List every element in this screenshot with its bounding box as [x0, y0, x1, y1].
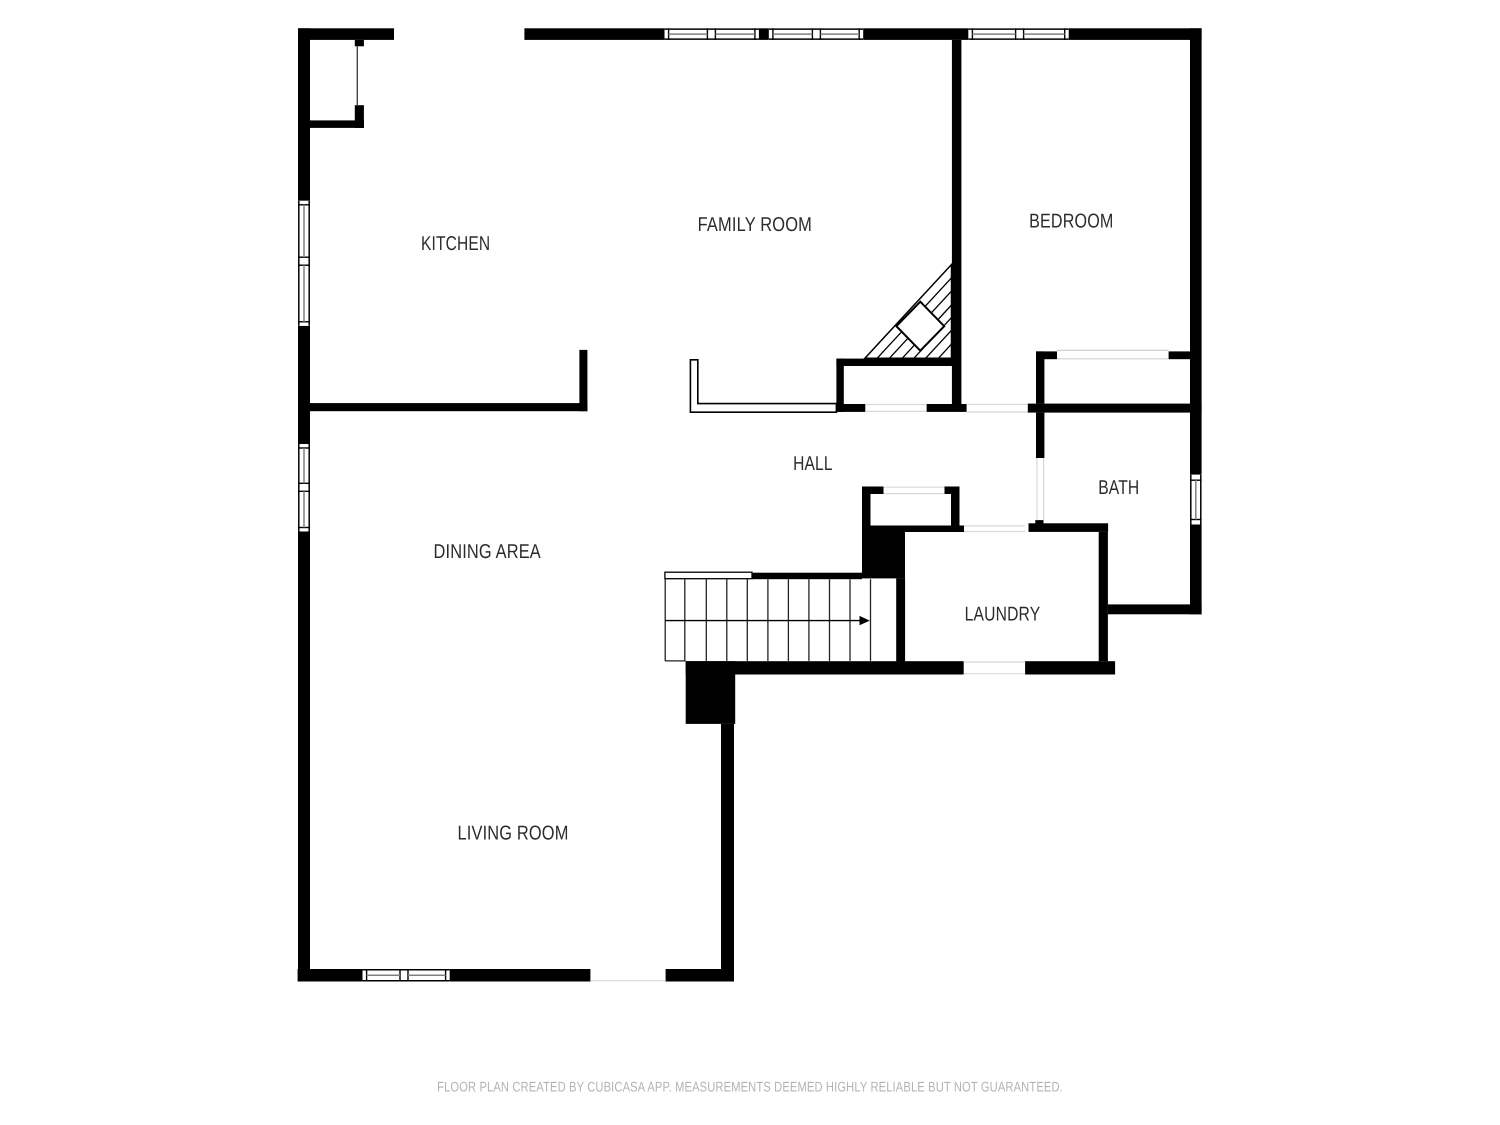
- svg-text:BATH: BATH: [1098, 477, 1139, 499]
- svg-text:LAUNDRY: LAUNDRY: [965, 604, 1041, 626]
- svg-text:LIVING ROOM: LIVING ROOM: [457, 823, 568, 845]
- svg-text:KITCHEN: KITCHEN: [421, 233, 490, 255]
- svg-text:HALL: HALL: [793, 453, 833, 475]
- svg-text:BEDROOM: BEDROOM: [1029, 211, 1113, 233]
- svg-text:FLOOR PLAN CREATED BY CUBICASA: FLOOR PLAN CREATED BY CUBICASA APP. MEAS…: [437, 1078, 1063, 1094]
- svg-text:FAMILY ROOM: FAMILY ROOM: [698, 214, 812, 236]
- svg-text:DINING AREA: DINING AREA: [434, 541, 542, 563]
